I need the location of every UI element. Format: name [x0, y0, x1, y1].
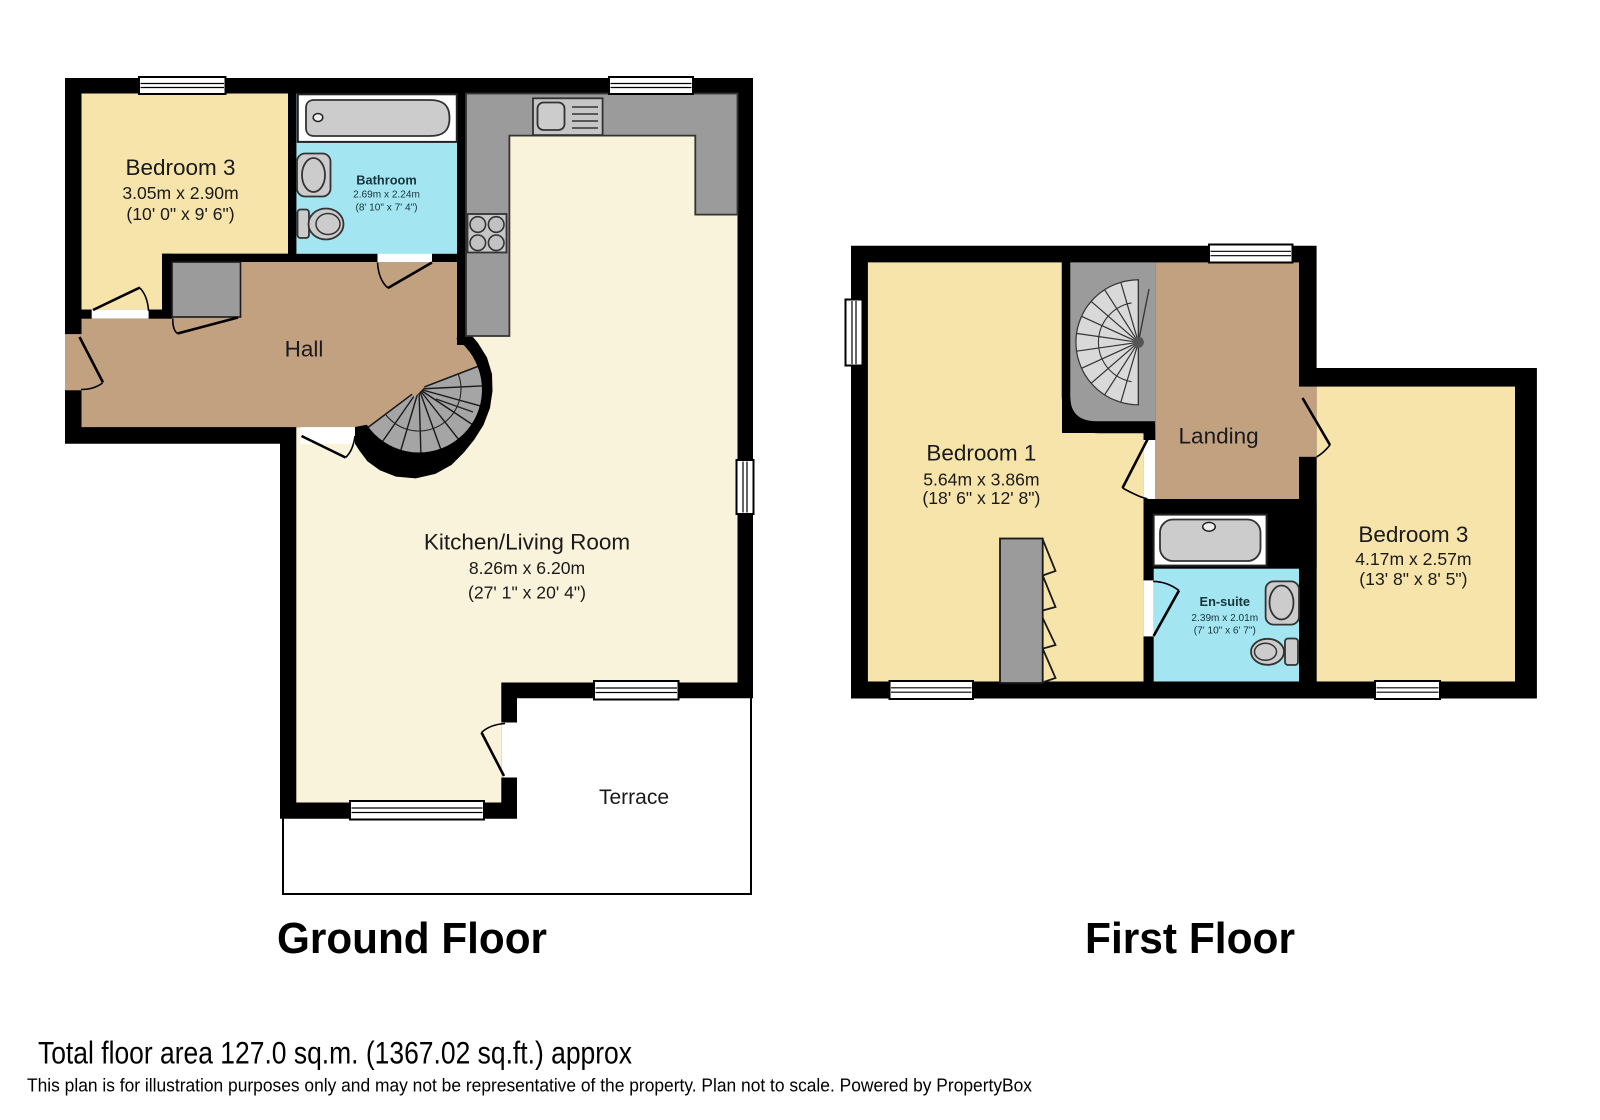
svg-text:Landing: Landing: [1179, 424, 1259, 449]
svg-text:(8' 10" x 7' 4"): (8' 10" x 7' 4"): [355, 203, 417, 214]
svg-text:2.69m x 2.24m: 2.69m x 2.24m: [353, 190, 420, 201]
svg-text:4.17m x 2.57m: 4.17m x 2.57m: [1355, 549, 1471, 569]
svg-text:Kitchen/Living Room: Kitchen/Living Room: [424, 530, 630, 555]
svg-text:2.39m x 2.01m: 2.39m x 2.01m: [1191, 613, 1258, 624]
svg-text:Hall: Hall: [285, 337, 324, 362]
svg-text:Total floor area 127.0 sq.m. (: Total floor area 127.0 sq.m. (1367.02 sq…: [38, 1035, 632, 1071]
svg-text:8.26m x 6.20m: 8.26m x 6.20m: [469, 558, 585, 578]
svg-text:(27' 1" x 20' 4"): (27' 1" x 20' 4"): [468, 583, 586, 603]
svg-text:En-suite: En-suite: [1200, 594, 1250, 609]
svg-text:5.64m x 3.86m: 5.64m x 3.86m: [923, 470, 1039, 490]
svg-text:Ground Floor: Ground Floor: [277, 914, 547, 963]
svg-text:Bathroom: Bathroom: [356, 173, 416, 188]
svg-text:This plan is for illustration: This plan is for illustration purposes o…: [27, 1075, 1033, 1096]
svg-text:(7' 10" x 6' 7"): (7' 10" x 6' 7"): [1194, 626, 1256, 637]
svg-text:First Floor: First Floor: [1085, 914, 1295, 963]
svg-text:Bedroom 3: Bedroom 3: [125, 155, 235, 180]
svg-text:(13' 8" x 8' 5"): (13' 8" x 8' 5"): [1359, 569, 1467, 589]
svg-text:Terrace: Terrace: [599, 786, 669, 809]
svg-text:(10' 0" x 9' 6"): (10' 0" x 9' 6"): [126, 204, 234, 224]
svg-text:(18' 6" x 12' 8"): (18' 6" x 12' 8"): [922, 488, 1040, 508]
svg-text:Bedroom 1: Bedroom 1: [926, 441, 1036, 466]
svg-text:Bedroom 3: Bedroom 3: [1358, 522, 1468, 547]
svg-text:3.05m x 2.90m: 3.05m x 2.90m: [122, 183, 238, 203]
